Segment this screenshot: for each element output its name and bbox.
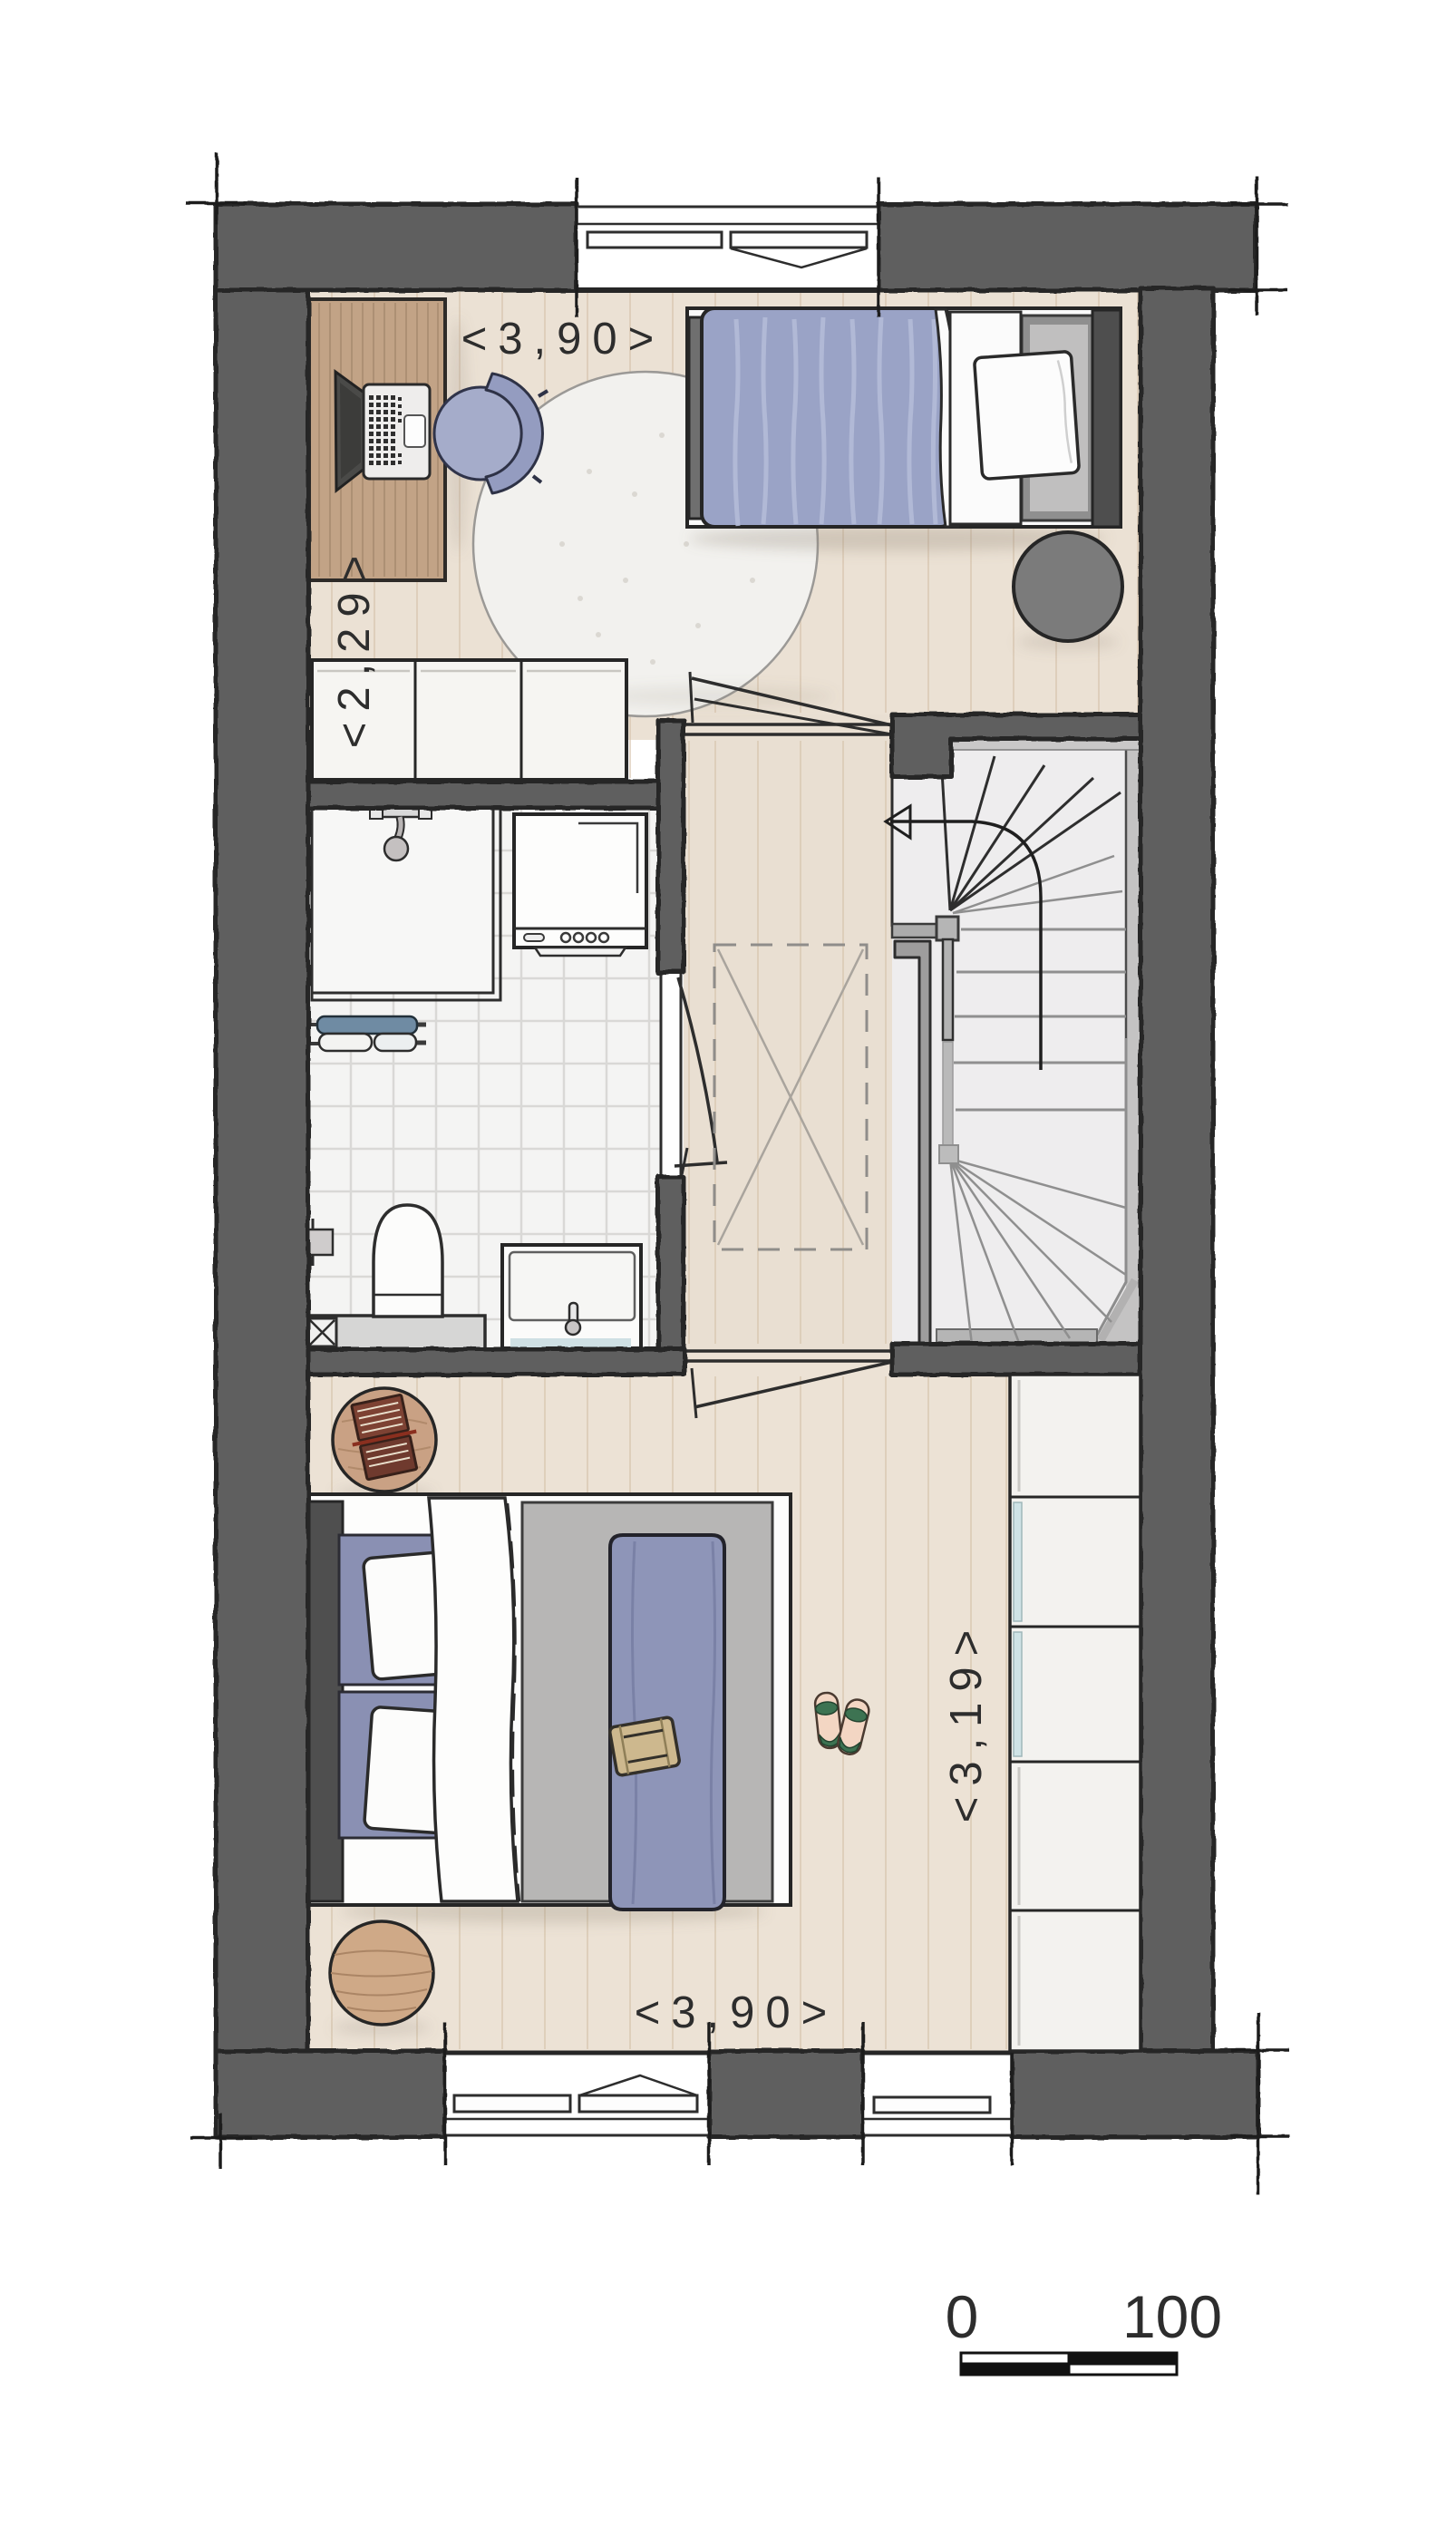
- svg-text:0: 0: [946, 2283, 979, 2350]
- svg-text:<3,90>: <3,90>: [635, 1988, 839, 2037]
- svg-text:<3,90>: <3,90>: [461, 315, 665, 364]
- svg-text:100: 100: [1122, 2283, 1222, 2350]
- svg-text:<2,29>: <2,29>: [330, 545, 379, 749]
- svg-text:<3,19>: <3,19>: [942, 1619, 991, 1823]
